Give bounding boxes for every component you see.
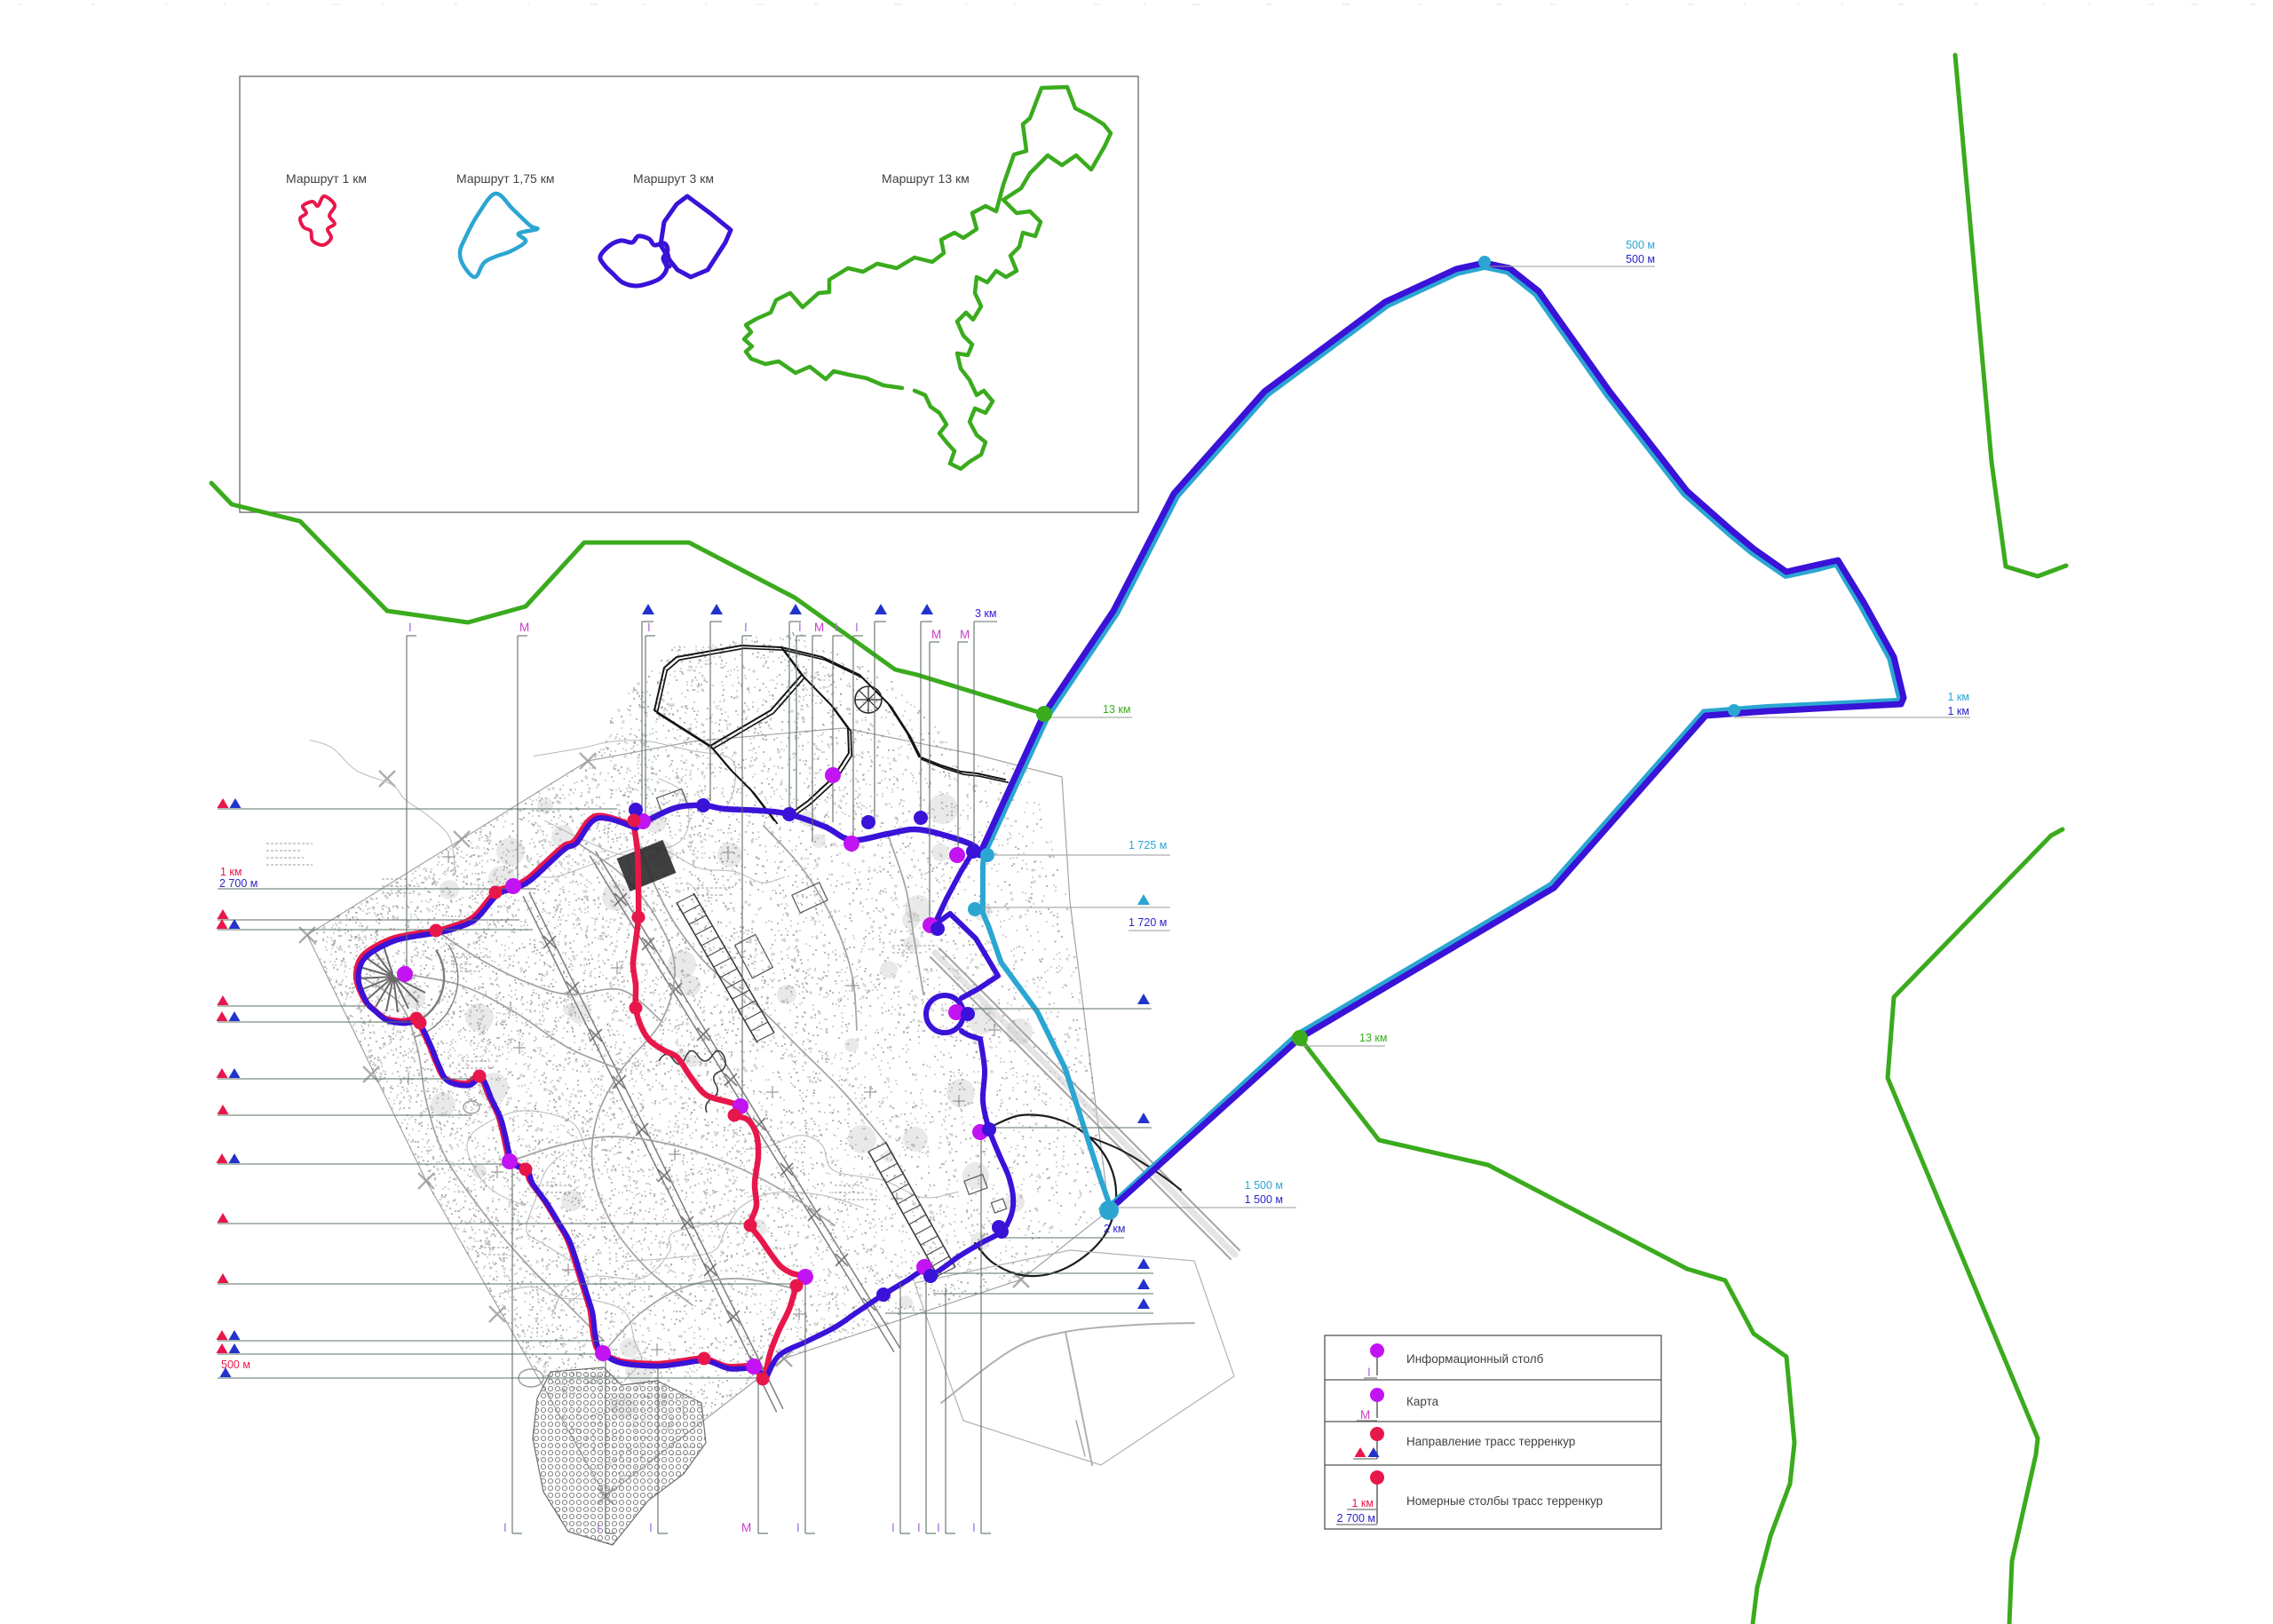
svg-text:I: I [972,1521,976,1534]
svg-text:I: I [744,621,748,634]
svg-text:2 700 м: 2 700 м [219,877,257,890]
svg-text:1 720 м: 1 720 м [1129,916,1167,929]
svg-text:I: I [917,1521,921,1534]
svg-text:1 500 м: 1 500 м [1245,1193,1283,1206]
svg-text:М: М [931,628,941,641]
svg-text:I: I [408,621,412,634]
svg-text:М: М [741,1521,751,1534]
svg-text:500 м: 500 м [221,1359,250,1371]
svg-text:Маршрут 3 км: Маршрут 3 км [633,171,714,186]
svg-text:Маршрут 13 км: Маршрут 13 км [882,171,970,186]
svg-text:М: М [519,621,529,634]
svg-text:1 км: 1 км [1948,691,1970,703]
svg-text:1 км: 1 км [1352,1497,1374,1509]
svg-text:I: I [835,621,838,634]
svg-text:Маршрут 1 км: Маршрут 1 км [286,171,367,186]
svg-text:М: М [814,621,824,634]
svg-text:3 км: 3 км [975,607,997,620]
svg-text:I: I [891,1521,895,1534]
svg-text:М: М [1360,1408,1370,1422]
svg-text:I: I [798,621,802,634]
svg-text:Карта: Карта [1406,1395,1439,1408]
svg-text:I: I [855,621,859,634]
svg-text:1 500 м: 1 500 м [1245,1179,1283,1192]
svg-text:Номерные столбы трасс терренку: Номерные столбы трасс терренкур [1406,1494,1603,1508]
svg-text:I: I [597,1521,600,1534]
svg-text:1 км: 1 км [1948,705,1970,717]
svg-text:I: I [647,621,651,634]
svg-text:1 км: 1 км [220,866,242,878]
svg-text:I: I [796,1521,800,1534]
svg-text:13 км: 13 км [1103,703,1130,716]
svg-text:1 725 м: 1 725 м [1129,839,1167,852]
svg-text:Информационный столб: Информационный столб [1406,1352,1544,1366]
svg-text:500 м: 500 м [1626,239,1655,251]
svg-text:2 700 м: 2 700 м [1337,1512,1375,1525]
svg-text:I: I [1367,1366,1371,1379]
svg-text:500 м: 500 м [1626,253,1655,265]
svg-text:Маршрут 1,75 км: Маршрут 1,75 км [456,171,554,186]
svg-text:13 км: 13 км [1359,1032,1387,1044]
svg-text:I: I [649,1521,653,1534]
svg-text:I: I [937,1521,940,1534]
svg-text:2 км: 2 км [1104,1223,1126,1235]
svg-text:Направление трасс терренкур: Направление трасс терренкур [1406,1435,1575,1448]
svg-text:I: I [503,1521,507,1534]
svg-text:М: М [960,628,970,641]
